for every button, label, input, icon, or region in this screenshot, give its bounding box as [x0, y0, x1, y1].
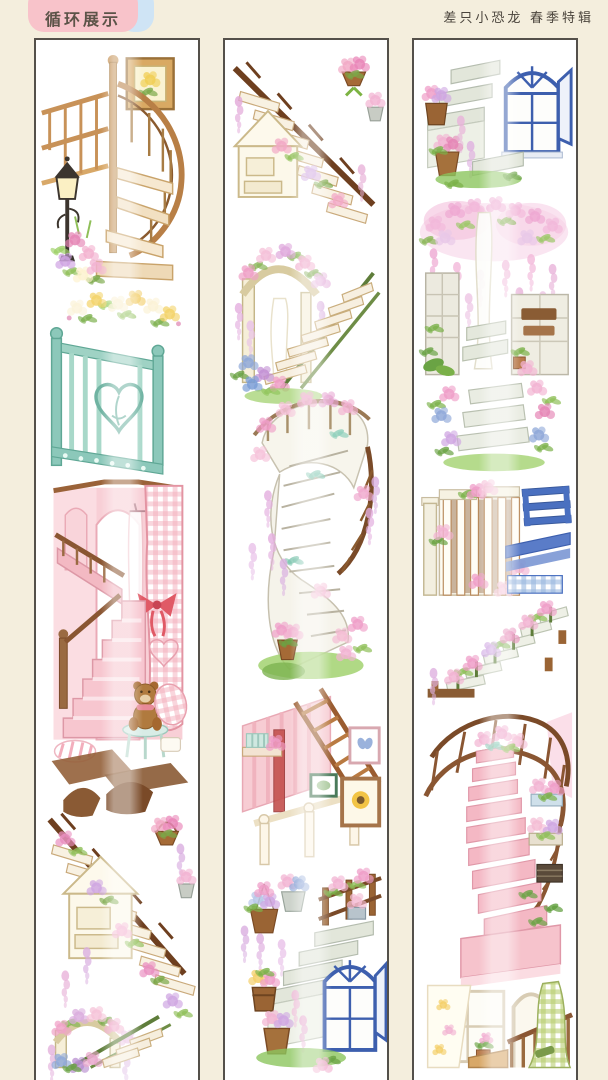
vignette-garden-staircase-cont	[235, 56, 386, 224]
tape-art-3	[414, 40, 576, 1080]
loop-display-badge-label: 循环展示	[45, 12, 121, 29]
vignette-mint-railing-with-garland	[51, 290, 181, 474]
vignette-white-spiral-staircase	[248, 391, 380, 680]
tape-art-1	[36, 40, 198, 1080]
vignette-rose-arch-steps-partial	[48, 1006, 171, 1080]
tape-strip-2	[223, 38, 389, 1080]
vignette-wooden-spiral-staircase	[42, 55, 182, 286]
vignette-wisteria-gateway	[418, 196, 569, 378]
loop-display-badge: 循环展示	[28, 0, 138, 32]
brand-title: 差只小恐龙 春季特辑	[443, 7, 594, 26]
vignette-pink-curved-staircase	[426, 712, 572, 987]
vignette-hydrangea-steps	[425, 380, 562, 472]
vignette-pink-interior-staircase	[52, 482, 191, 794]
vignette-window-gingham-partial	[428, 982, 572, 1068]
vignette-rose-arch-steps	[229, 243, 380, 404]
vignette-garden-staircase	[50, 782, 197, 1020]
tape-strip-1	[34, 38, 200, 1080]
vignette-stone-steps-blue-window	[241, 868, 386, 1073]
product-showcase-page: 循环展示 差只小恐龙 春季特辑	[0, 0, 608, 1080]
vignette-blue-window-cont	[422, 60, 572, 190]
vignette-picket-gate-blue-bench	[422, 479, 572, 597]
tape-strip-3	[412, 38, 578, 1080]
tape-art-2	[225, 40, 387, 1080]
vignette-flower-lined-steps	[428, 600, 569, 705]
vignette-pink-attic-stair	[243, 689, 380, 865]
